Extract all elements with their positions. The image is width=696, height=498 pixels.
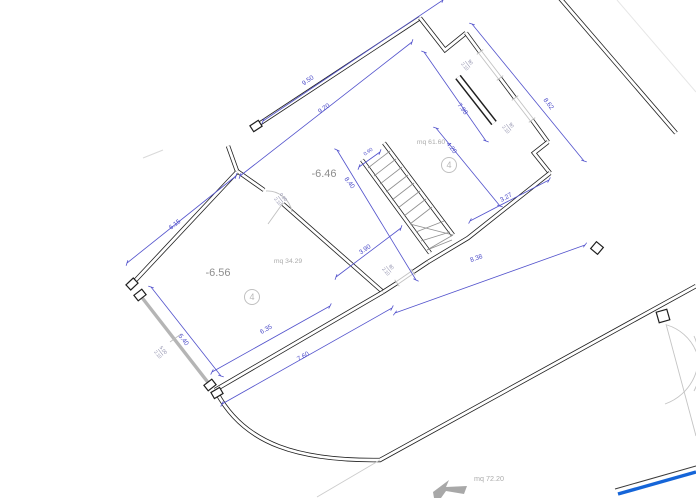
window-spec-ne2: 90 2.10 (501, 120, 516, 135)
dim-top-outer: 9.50 (263, 0, 443, 121)
window-spec-west: 5.00 2.10 (153, 345, 168, 360)
dim-south-total: 8.38 (395, 245, 585, 313)
wall-end-caps (126, 120, 262, 398)
floor-plan-canvas: 9.50 9.20 8.62 7.98 4.20 0.90 8.40 3.27 … (0, 0, 696, 498)
building-walls (132, 18, 550, 390)
stair-treads (368, 151, 453, 250)
window-spec-ne1: 90 2.10 (460, 57, 475, 72)
dim-stair-opening: 0.90 (359, 147, 380, 167)
dim-room-a-west: 6.15 (127, 176, 236, 263)
window-ne1 (477, 50, 503, 81)
faint-terrain-line (143, 150, 163, 158)
svg-text:9.50: 9.50 (301, 74, 316, 87)
svg-text:8.62: 8.62 (542, 97, 556, 112)
gate-swing-arcs (665, 324, 696, 436)
outdoor-area: mq 72.20 (474, 474, 504, 483)
svg-text:8.38: 8.38 (469, 253, 484, 264)
svg-text:6.35: 6.35 (259, 323, 274, 336)
svg-text:4: 4 (446, 160, 451, 170)
slope-arrow (433, 480, 467, 498)
glazed-west-wall (140, 295, 210, 385)
dim-east-outer: 8.62 (472, 24, 584, 161)
svg-text:3.90: 3.90 (358, 243, 373, 256)
staircase (266, 143, 453, 253)
room-b-area: mq 34.29 (274, 258, 303, 265)
floor-plan-drawing: 9.50 9.20 8.62 7.98 4.20 0.90 8.40 3.27 … (0, 0, 696, 498)
column-marker (591, 242, 604, 255)
svg-text:7.60: 7.60 (296, 350, 311, 363)
svg-text:9.20: 9.20 (317, 102, 332, 115)
terrain-line-sw (317, 460, 380, 497)
dim-annex-south: 3.27 (470, 180, 549, 221)
blue-boundary-line (618, 472, 696, 494)
svg-text:0.90: 0.90 (363, 147, 375, 158)
dim-room-b-width: 6.35 (212, 306, 330, 372)
dim-top-inner: 9.20 (240, 42, 412, 176)
room-b-badge: 4 (245, 290, 260, 305)
dim-room-b-west: 5.40 (151, 287, 221, 376)
room-a-level: -6.46 (311, 168, 336, 180)
room-a-area: mq 61.60 (417, 139, 446, 146)
room-a-badge: 4 (442, 158, 457, 173)
window-ne2 (512, 96, 535, 123)
site-context (143, 0, 696, 498)
window-south (395, 269, 416, 287)
site-retaining-wall (217, 286, 696, 460)
column-marker (656, 309, 670, 323)
window-spec-south: 80 2.10 (381, 262, 396, 277)
svg-text:4.20: 4.20 (445, 141, 459, 156)
boundary-edge-line (615, 466, 696, 489)
svg-text:4: 4 (249, 292, 254, 302)
room-b-level: -6.56 (205, 267, 230, 279)
dim-south-outer: 7.60 (222, 308, 392, 404)
